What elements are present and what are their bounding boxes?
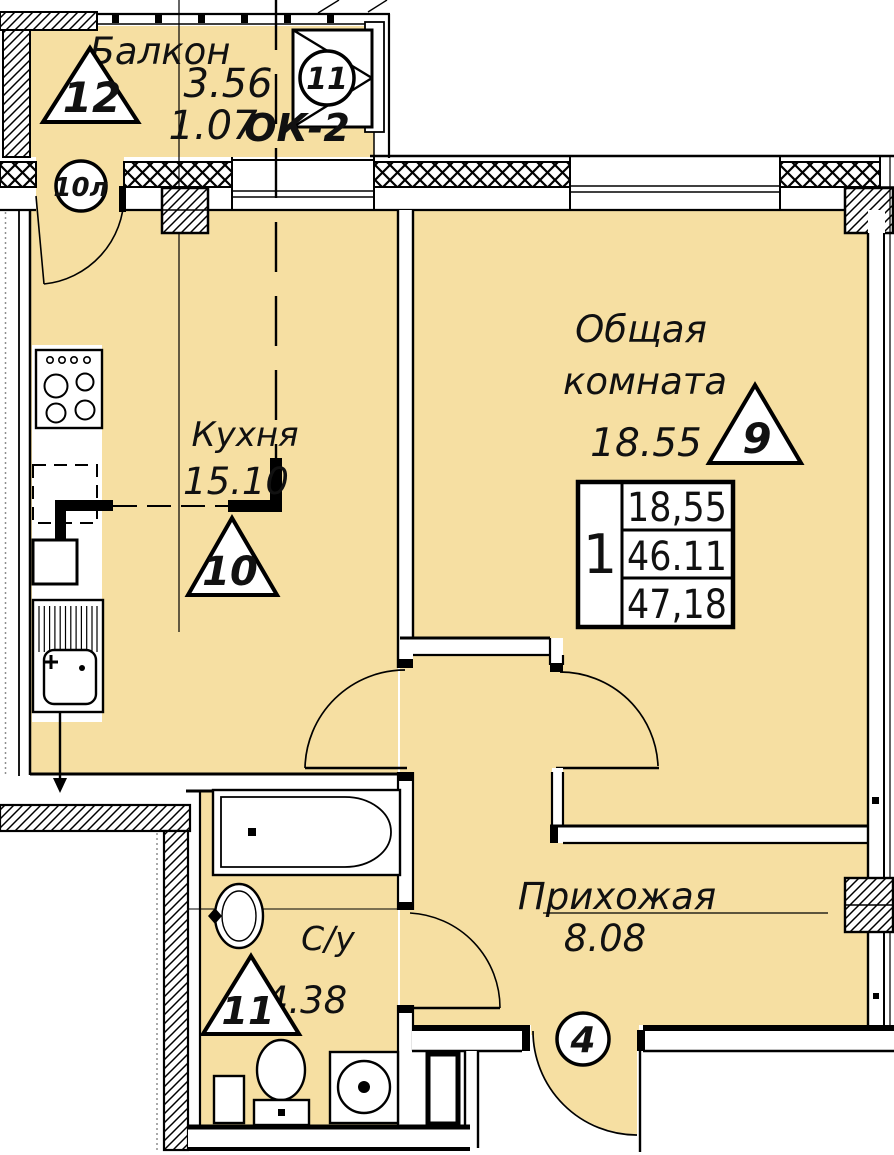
hall-area: 8.08 (564, 917, 646, 960)
right-wall-column (845, 878, 893, 932)
stamp-apartment-area: 46.11 (627, 534, 727, 580)
living-label-line2: комната (563, 360, 727, 403)
bath-label: С/у (301, 919, 355, 958)
kitchen-label: Кухня (191, 415, 298, 455)
stove (36, 350, 102, 428)
hall-label: Прихожая (518, 875, 716, 918)
floor-plan-drawing: Балкон 3.56 1.07 ОК-2 Кухня 15.10 Общая … (0, 0, 894, 1155)
circle-marker-11-window: 11 (300, 51, 354, 105)
floor-plan: Балкон 3.56 1.07 ОК-2 Кухня 15.10 Общая … (0, 0, 894, 1155)
left-wall (6, 210, 31, 806)
kitchen-sink (33, 600, 103, 712)
living-label-line1: Общая (575, 308, 707, 351)
living-area: 18.55 (590, 421, 702, 466)
svg-text:10л: 10л (53, 173, 108, 203)
svg-text:9: 9 (742, 414, 771, 463)
stamp-rooms-count: 1 (583, 523, 617, 586)
balcony-area-top: 3.56 (183, 61, 272, 107)
stamp-total-area: 47,18 (627, 582, 727, 628)
svg-text:10: 10 (202, 549, 258, 595)
washing-machine (330, 1052, 398, 1123)
circle-marker-10l: 10л (53, 161, 108, 211)
apartment-stamp: 1 18,55 46.11 47,18 (578, 482, 733, 628)
svg-text:12: 12 (63, 73, 121, 122)
vent-pillar (162, 188, 208, 233)
bath-corner-box (214, 1076, 244, 1123)
kitchen-area: 15.10 (183, 460, 289, 503)
shaft-box (428, 1054, 458, 1124)
svg-text:11: 11 (222, 989, 275, 1033)
toilet (254, 1040, 309, 1125)
svg-text:11: 11 (306, 62, 348, 97)
circle-marker-4-entry: 4 (557, 1013, 609, 1065)
window-tag-label: ОК-2 (244, 106, 350, 150)
stamp-living-area: 18,55 (627, 485, 727, 531)
svg-text:4: 4 (569, 1020, 595, 1061)
bathtub (213, 790, 400, 875)
cabinet (33, 540, 77, 584)
